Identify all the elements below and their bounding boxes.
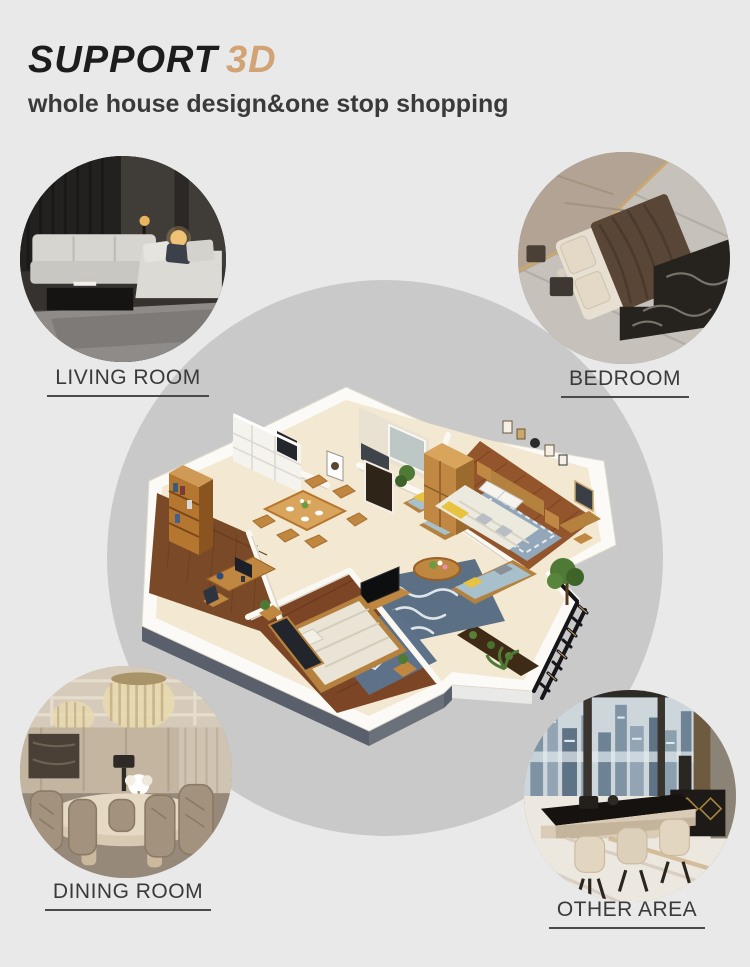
dining-room-photo xyxy=(20,666,232,878)
bedroom-photo xyxy=(518,152,730,364)
bedroom-label: BEDROOM xyxy=(540,367,710,398)
other-area-label: OTHER AREA xyxy=(534,898,720,929)
living-room-label: LIVING ROOM xyxy=(30,366,226,397)
title-accent-3d: 3D xyxy=(226,39,277,81)
title-main: SUPPORT xyxy=(28,39,218,81)
page-title: SUPPORT3D xyxy=(28,40,588,82)
header: SUPPORT3D whole house design&one stop sh… xyxy=(28,40,588,119)
living-room-photo xyxy=(20,156,226,362)
page-subtitle: whole house design&one stop shopping xyxy=(28,90,588,119)
promo-banner: SUPPORT3D whole house design&one stop sh… xyxy=(0,0,750,967)
dining-room-label: DINING ROOM xyxy=(30,880,226,911)
other-area-photo xyxy=(524,690,736,902)
